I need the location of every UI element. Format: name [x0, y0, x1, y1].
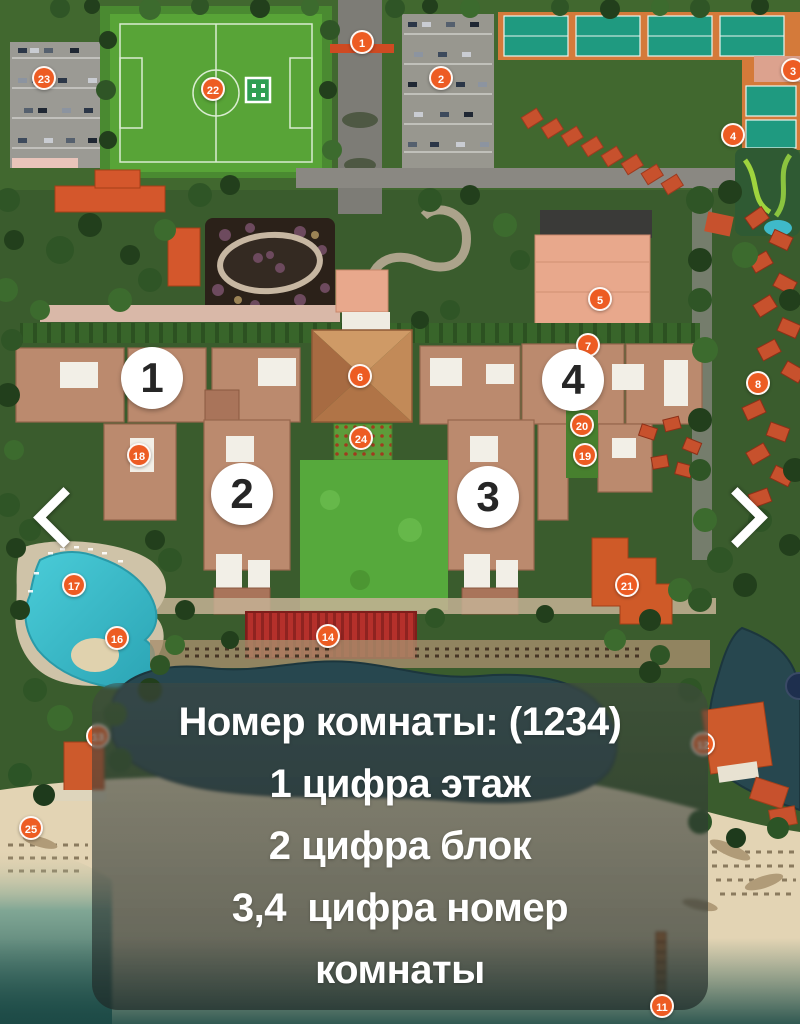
map-marker-17: 17 [62, 573, 86, 597]
map-marker-3: 3 [781, 58, 800, 82]
map-marker-11: 11 [650, 994, 674, 1018]
legend-line: 3,4 цифра номер [179, 877, 622, 939]
map-marker-16: 16 [105, 626, 129, 650]
map-marker-5: 5 [588, 287, 612, 311]
map-marker-6: 6 [348, 364, 372, 388]
map-marker-8: 8 [746, 371, 770, 395]
legend-lines: Номер комнаты: (1234)1 цифра этаж2 цифра… [179, 691, 622, 1001]
map-marker-25: 25 [19, 816, 43, 840]
block-number-3: 3 [457, 466, 519, 528]
block-number-2: 2 [211, 463, 273, 525]
map-marker-20: 20 [570, 413, 594, 437]
map-marker-2: 2 [429, 66, 453, 90]
map-marker-21: 21 [615, 573, 639, 597]
legend-line: 2 цифра блок [179, 815, 622, 877]
legend-line: Номер комнаты: (1234) [179, 691, 622, 753]
map-marker-18: 18 [127, 443, 151, 467]
map-marker-24: 24 [349, 426, 373, 450]
block-number-1: 1 [121, 347, 183, 409]
resort-map-screen: 123422235678241820191716142125131211 123… [0, 0, 800, 1024]
map-marker-14: 14 [316, 624, 340, 648]
map-marker-22: 22 [201, 77, 225, 101]
map-marker-19: 19 [573, 443, 597, 467]
legend-line: комнаты [179, 939, 622, 1001]
map-marker-4: 4 [721, 123, 745, 147]
map-marker-23: 23 [32, 66, 56, 90]
block-number-4: 4 [542, 349, 604, 411]
legend-line: 1 цифра этаж [179, 753, 622, 815]
map-marker-1: 1 [350, 30, 374, 54]
room-number-legend: Номер комнаты: (1234)1 цифра этаж2 цифра… [92, 683, 708, 1010]
